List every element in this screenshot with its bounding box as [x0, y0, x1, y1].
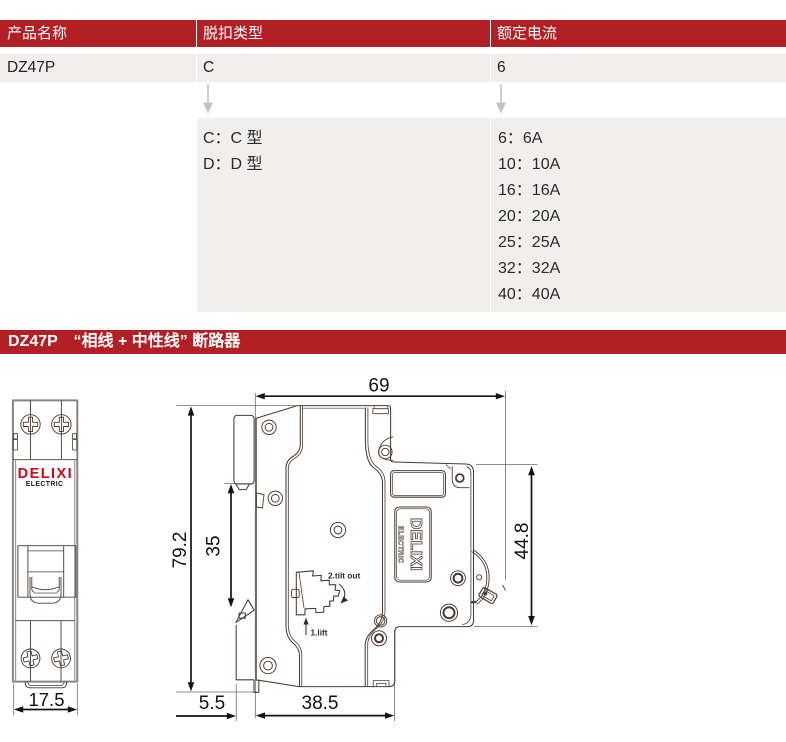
- svg-text:17.5: 17.5: [28, 689, 64, 710]
- svg-text:69: 69: [368, 376, 389, 397]
- svg-text:44.8: 44.8: [512, 523, 533, 560]
- svg-text:79.2: 79.2: [170, 532, 191, 569]
- svg-text:2.tilt out: 2.tilt out: [328, 570, 360, 580]
- svg-text:5.5: 5.5: [199, 693, 225, 714]
- svg-text:DELIXI: DELIXI: [18, 466, 73, 482]
- svg-text:DELIXI: DELIXI: [407, 518, 424, 571]
- svg-text:ELECTRIC: ELECTRIC: [26, 481, 64, 488]
- svg-text:38.5: 38.5: [302, 693, 339, 714]
- svg-text:1.lift: 1.lift: [311, 627, 328, 637]
- svg-text:35: 35: [203, 535, 224, 556]
- svg-text:ELECTRIC: ELECTRIC: [397, 526, 404, 563]
